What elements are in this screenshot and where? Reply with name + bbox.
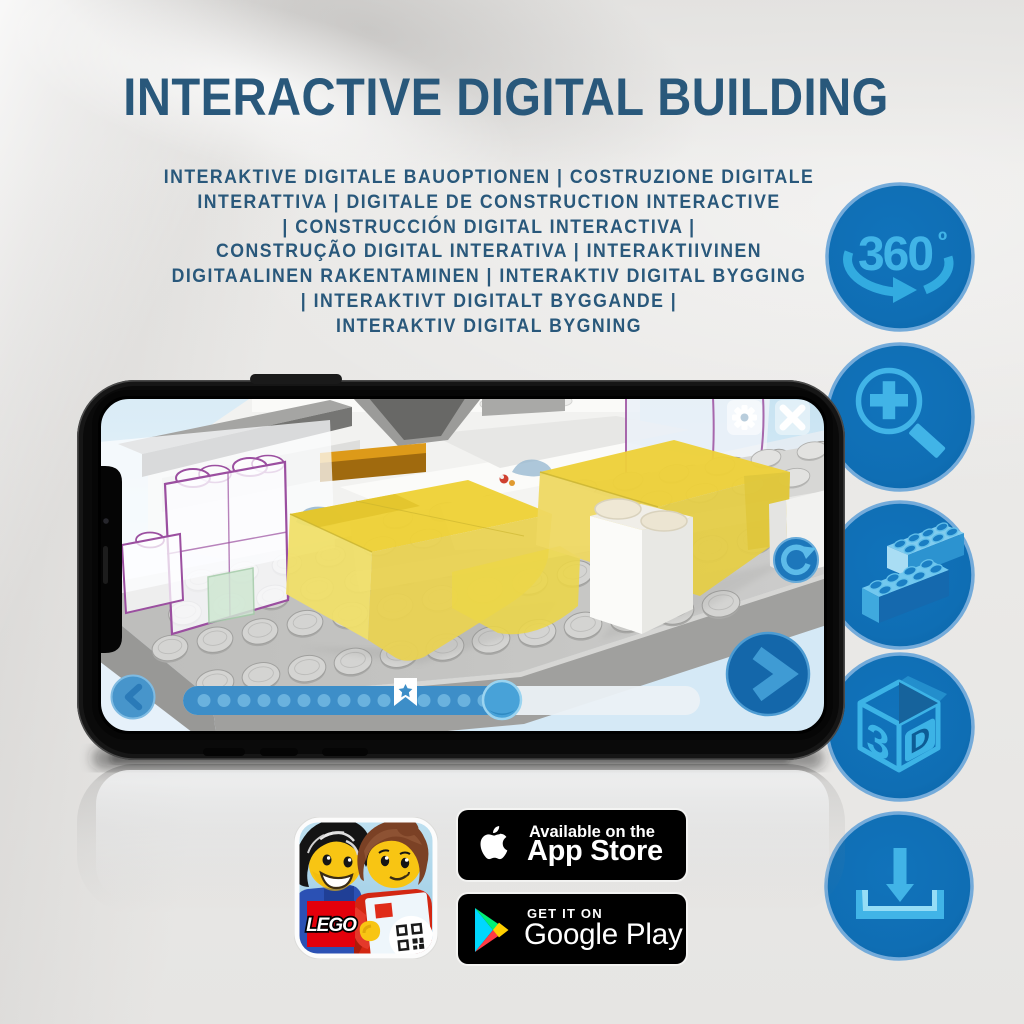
svg-text:360: 360 (858, 228, 932, 281)
svg-text:LEGO: LEGO (306, 915, 357, 936)
svg-text:º: º (938, 227, 947, 255)
